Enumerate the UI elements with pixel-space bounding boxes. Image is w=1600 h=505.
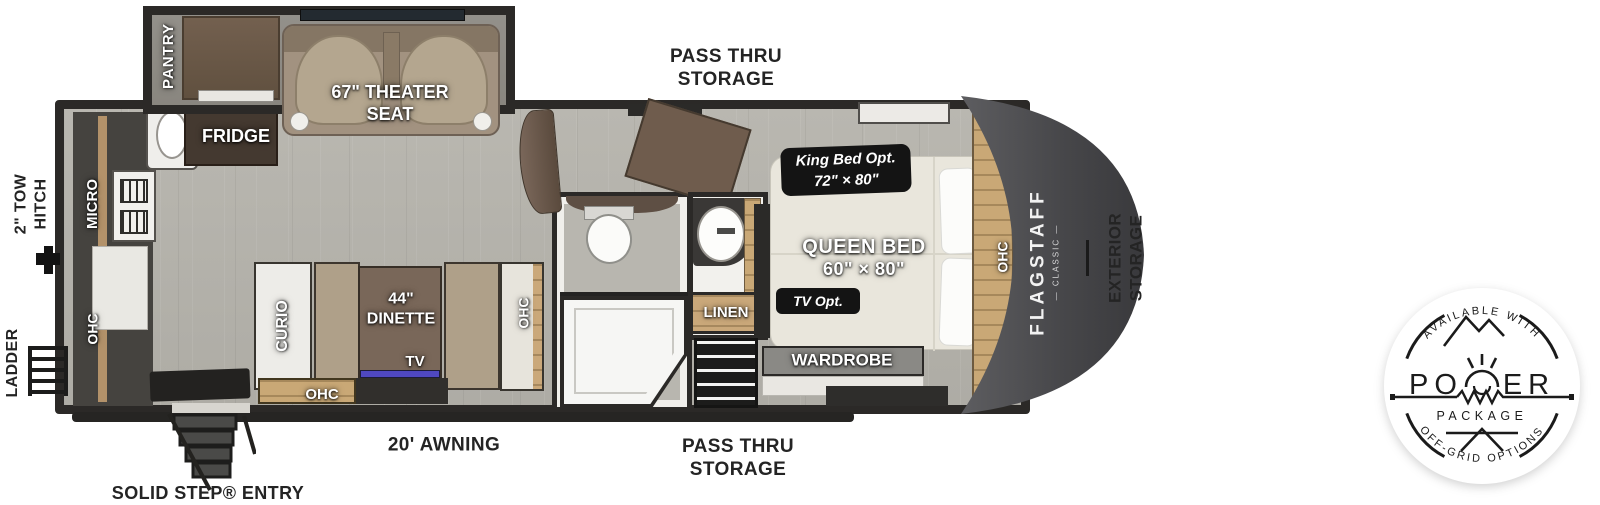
pass-thru-top-line2: STORAGE <box>670 68 782 91</box>
pass-thru-top-line1: PASS THRU <box>670 45 782 68</box>
ohc-bedroom-label: OHC <box>994 241 1011 272</box>
fireplace <box>150 368 251 401</box>
ohc-dinette-label: OHC <box>305 386 338 404</box>
cupholder <box>290 112 309 131</box>
queen-bed-label-line1: QUEEN BED <box>802 235 925 259</box>
king-bed-badge-line2: 72" × 80" <box>781 168 912 194</box>
linen-label: LINEN <box>704 304 749 322</box>
roof-vent <box>858 102 950 124</box>
bedroom-steps <box>694 338 758 408</box>
slide-window <box>300 9 465 21</box>
dinette-bench-right <box>444 262 500 390</box>
entry-label: SOLID STEP® ENTRY <box>112 483 304 505</box>
king-bed-option-badge: King Bed Opt. 72" × 80" <box>780 144 912 197</box>
ohc-kitchen-label: OHC <box>84 313 101 344</box>
tv-option-badge-text: TV Opt. <box>776 293 860 309</box>
fridge-label: FRIDGE <box>202 126 270 148</box>
theater-seat-label: 67" THEATER SEAT <box>331 82 448 126</box>
tv-option-badge: TV Opt. <box>776 288 860 314</box>
dinette-label-line2: DINETTE <box>367 309 435 329</box>
exterior-storage-label: EXTERIOR STORAGE <box>1105 213 1146 303</box>
flagstaff-logo-name: FLAGSTAFF <box>1027 188 1050 336</box>
power-package-badge: AVAILABLE WITH PO ER PACKAGE OFF-GRID OP… <box>1380 284 1584 488</box>
pantry-label: PANTRY <box>160 23 178 89</box>
floorplan-canvas: PANTRY FRIDGE 67" THEATER SEAT MICRO OHC… <box>0 0 1600 505</box>
flagstaff-logo: FLAGSTAFF — CLASSIC — <box>1027 188 1062 336</box>
burner-grate <box>120 179 148 203</box>
pass-thru-bottom-line2: STORAGE <box>682 458 794 481</box>
bedroom-dresser <box>826 386 948 406</box>
badge-package-text: PACKAGE <box>1436 409 1527 423</box>
theater-seat-label-line2: SEAT <box>331 104 448 126</box>
tow-hitch-icon-bar <box>36 253 60 265</box>
ladder-icon <box>28 346 68 396</box>
pantry-ledge <box>198 90 274 102</box>
tv-shelf <box>352 378 448 404</box>
pantry-cabinet <box>182 16 280 100</box>
range-stove <box>112 170 156 242</box>
curio-label: CURIO <box>273 300 293 352</box>
theater-seat-label-line1: 67" THEATER <box>331 82 448 104</box>
dinette-label-line1: 44" <box>367 289 435 309</box>
flagstaff-logo-series: — CLASSIC — <box>1052 188 1062 336</box>
dinette-label: 44" DINETTE <box>367 289 435 328</box>
pass-thru-storage-bottom-label: PASS THRU STORAGE <box>682 435 794 481</box>
tv-label: TV <box>405 353 424 371</box>
cupholder <box>473 112 492 131</box>
tv-screen-strip <box>360 370 440 378</box>
ladder-label: LADDER <box>3 328 23 397</box>
tow-hitch-line1: 2" TOW <box>11 174 31 234</box>
micro-label: MICRO <box>84 179 102 229</box>
vanity-faucet <box>717 228 735 234</box>
queen-bed-label-line2: 60" × 80" <box>802 259 925 281</box>
ohc-hall-wood-edge <box>533 264 542 389</box>
pass-thru-storage-top-label: PASS THRU STORAGE <box>670 45 782 91</box>
tow-hitch-label: 2" TOW HITCH <box>11 174 50 234</box>
pass-thru-bottom-line1: PASS THRU <box>682 435 794 458</box>
line-end-dot <box>1390 394 1395 400</box>
line-end-dot <box>1569 394 1574 400</box>
ohc-hall-label: OHC <box>515 297 532 328</box>
entry-steps-icon <box>162 412 256 492</box>
bedroom-tv-panel <box>754 204 770 338</box>
awning-label: 20' AWNING <box>388 433 500 456</box>
dinette-bench-left <box>314 262 360 390</box>
exterior-storage-marker <box>1086 240 1089 276</box>
mattress-seam-v <box>933 157 935 351</box>
queen-bed-label: QUEEN BED 60" × 80" <box>802 235 925 281</box>
wardrobe-label: WARDROBE <box>791 351 892 372</box>
tow-hitch-line2: HITCH <box>31 174 51 234</box>
vanity-sink <box>697 206 745 262</box>
burner-grate <box>120 210 148 234</box>
exterior-storage-line1: EXTERIOR <box>1105 213 1126 303</box>
exterior-storage-line2: STORAGE <box>1126 213 1147 303</box>
